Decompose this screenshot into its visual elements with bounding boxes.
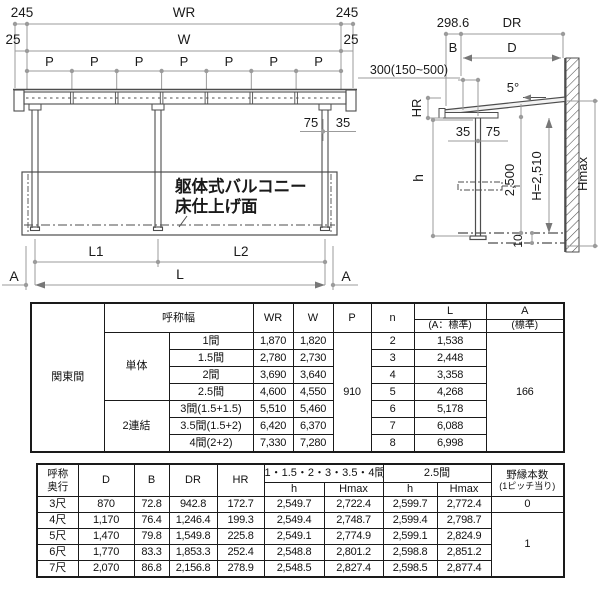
- cell: 5,178: [414, 401, 486, 418]
- header-a: A: [486, 303, 564, 320]
- header-h1: h: [264, 483, 324, 497]
- cell: 8: [371, 435, 414, 453]
- cell: 1,246.4: [169, 513, 217, 529]
- cell: 2,798.7: [437, 513, 491, 529]
- cell: 2,549.4: [264, 513, 324, 529]
- pitch-dimension-line: [27, 71, 341, 89]
- dim-l2-label: L2: [233, 244, 248, 259]
- cell: 1,870: [253, 333, 293, 350]
- cell: 6,998: [414, 435, 486, 453]
- header-b: B: [134, 464, 169, 497]
- roof-angle-label: 5°: [507, 80, 519, 95]
- cell: 6,370: [293, 418, 333, 435]
- cell: 2,877.4: [437, 561, 491, 578]
- dim-l-label: L: [176, 266, 184, 282]
- cell: 3間(1.5+1.5): [169, 401, 253, 418]
- cell: 2,730: [293, 350, 333, 367]
- cell: 2,070: [78, 561, 134, 578]
- header-l-sub: (A：標準): [414, 320, 486, 333]
- roof-beam: [13, 90, 357, 112]
- joists-first-cell: 0: [491, 497, 564, 513]
- cell: 5: [371, 384, 414, 401]
- section-a-left-label: A: [9, 268, 19, 284]
- cell: 2,598.8: [383, 545, 437, 561]
- overhang-range-label: 300(150~500): [370, 63, 448, 77]
- post-dimension-dot: [476, 139, 480, 143]
- post-offset-dot: [321, 129, 325, 133]
- table-row: 5尺 1,470 79.8 1,549.8 225.8 2,549.1 2,77…: [37, 529, 564, 545]
- svg-text:P: P: [45, 54, 54, 69]
- cell: 7,280: [293, 435, 333, 453]
- cell: 1間: [169, 333, 253, 350]
- cell: 870: [78, 497, 134, 513]
- header-hmax1: Hmax: [324, 483, 383, 497]
- joists-rest-cell: 1: [491, 513, 564, 578]
- cell: 2間: [169, 367, 253, 384]
- dim-10-label: 10: [511, 234, 525, 248]
- cell: 942.8: [169, 497, 217, 513]
- table-row: 4尺 1,170 76.4 1,246.4 199.3 2,549.4 2,74…: [37, 513, 564, 529]
- dim-w-label: W: [178, 32, 191, 47]
- cell: 1,470: [78, 529, 134, 545]
- dim-245-left-label: 245: [11, 5, 34, 20]
- cell: 2,827.4: [324, 561, 383, 578]
- svg-text:P: P: [314, 54, 323, 69]
- cell: 5,460: [293, 401, 333, 418]
- cell: 6: [371, 401, 414, 418]
- cell: 2,156.8: [169, 561, 217, 578]
- cell: 199.3: [217, 513, 264, 529]
- side-section-drawing: 298.6 DR B D 300(150~500) 5°: [340, 0, 600, 300]
- cell: 4間(2+2): [169, 435, 253, 453]
- svg-text:P: P: [135, 54, 144, 69]
- dim-dr-label: DR: [503, 15, 522, 30]
- header-group2: 2.5間: [383, 464, 491, 483]
- cell: 2,548.5: [264, 561, 324, 578]
- cell: 5,510: [253, 401, 293, 418]
- cell: 79.8: [134, 529, 169, 545]
- cell: 1,538: [414, 333, 486, 350]
- cell: 1,853.3: [169, 545, 217, 561]
- cell: 3: [371, 350, 414, 367]
- cell: 5尺: [37, 529, 78, 545]
- cell: 2,772.4: [437, 497, 491, 513]
- cell: 172.7: [217, 497, 264, 513]
- header-joists: 野縁本数 (1ピッチ当り): [491, 464, 564, 497]
- side-post: [470, 118, 486, 240]
- dr-dimension: [446, 34, 563, 106]
- table-row: 2連結 3間(1.5+1.5) 5,510 5,460 6 5,178: [31, 401, 564, 418]
- depth-spec-table: 呼称 奥行 D B DR HR 1・1.5・2・3・3.5・4間 2.5間 野縁…: [36, 463, 565, 578]
- cell: 2,548.8: [264, 545, 324, 561]
- header-dr: DR: [169, 464, 217, 497]
- dim-35-side-label: 35: [456, 124, 470, 139]
- cell: 4,550: [293, 384, 333, 401]
- cell: 4: [371, 367, 414, 384]
- cell: 2,599.1: [383, 529, 437, 545]
- width-spec-table: 関東間 呼称幅 WR W P n L A (A：標準) (標準) 単体 1間 1…: [30, 302, 565, 453]
- header-depth: 呼称 奥行: [37, 464, 78, 497]
- header-depth-line2: 奥行: [38, 481, 78, 493]
- cell: 2,774.9: [324, 529, 383, 545]
- header-p: P: [333, 303, 371, 333]
- cell: 4尺: [37, 513, 78, 529]
- header-l: L: [414, 303, 486, 320]
- dim-75-side-label: 75: [486, 124, 500, 139]
- header-a-sub: (標準): [486, 320, 564, 333]
- header-wr: WR: [253, 303, 293, 333]
- dim-75-label: 75: [304, 115, 318, 130]
- roof-panel: [439, 97, 565, 118]
- table-row: 6尺 1,770 83.3 1,853.3 252.4 2,548.8 2,80…: [37, 545, 564, 561]
- dim-d-label: D: [507, 40, 516, 55]
- cell: 278.9: [217, 561, 264, 578]
- header-d: D: [78, 464, 134, 497]
- header-depth-line1: 呼称: [38, 468, 78, 480]
- cell: 225.8: [217, 529, 264, 545]
- cell: 83.3: [134, 545, 169, 561]
- cell: 2,748.7: [324, 513, 383, 529]
- header-n: n: [371, 303, 414, 333]
- cell: 1,549.8: [169, 529, 217, 545]
- table-row: 7尺 2,070 86.8 2,156.8 278.9 2,548.5 2,82…: [37, 561, 564, 578]
- cell: 6,420: [253, 418, 293, 435]
- cell: 3,640: [293, 367, 333, 384]
- cell: 2,549.1: [264, 529, 324, 545]
- cell: 4,600: [253, 384, 293, 401]
- cell: 1,820: [293, 333, 333, 350]
- cell: 2,599.4: [383, 513, 437, 529]
- table-row: 単体 1間 1,870 1,820 910 2 1,538 166: [31, 333, 564, 350]
- cell: 2,780: [253, 350, 293, 367]
- cell: 7尺: [37, 561, 78, 578]
- cell: 2,598.5: [383, 561, 437, 578]
- dim-25-left-label: 25: [5, 32, 20, 47]
- dim-hmax-label: Hmax: [575, 157, 590, 191]
- cell: 2,824.9: [437, 529, 491, 545]
- building-wall-hatch: [566, 58, 579, 252]
- cell: 7: [371, 418, 414, 435]
- dim-h-eq-label: H=2,510: [529, 151, 544, 201]
- dim-l1-label: L1: [88, 244, 103, 259]
- dim-h-label: h: [410, 174, 426, 182]
- cell: 2,722.4: [324, 497, 383, 513]
- balcony-note-line1: 躯体式バルコニー: [174, 176, 307, 196]
- header-hmax2: Hmax: [437, 483, 491, 497]
- cell: 6尺: [37, 545, 78, 561]
- dim-298-6-label: 298.6: [437, 15, 470, 30]
- cell: 2,599.7: [383, 497, 437, 513]
- header-joists-line2: (1ピッチ当り): [492, 481, 564, 491]
- pitch-labels: P P P P P P P: [45, 54, 323, 69]
- cell: 2.5間: [169, 384, 253, 401]
- table-row: 3尺 870 72.8 942.8 172.7 2,549.7 2,722.4 …: [37, 497, 564, 513]
- balcony-note-line2: 床仕上げ面: [175, 196, 258, 216]
- cell: 76.4: [134, 513, 169, 529]
- cell: 4,268: [414, 384, 486, 401]
- svg-text:P: P: [180, 54, 189, 69]
- dim-wr-label: WR: [173, 5, 196, 20]
- cell: 2,801.2: [324, 545, 383, 561]
- cell: 86.8: [134, 561, 169, 578]
- region-cell: 関東間: [31, 303, 104, 452]
- cell: 1.5間: [169, 350, 253, 367]
- header-group1: 1・1.5・2・3・3.5・4間: [264, 464, 383, 483]
- dim-2500-label: 2,500: [502, 164, 517, 197]
- cell: 2,851.2: [437, 545, 491, 561]
- header-hr: HR: [217, 464, 264, 497]
- svg-text:P: P: [225, 54, 234, 69]
- group-single-cell: 単体: [104, 333, 169, 401]
- cell: 7,330: [253, 435, 293, 453]
- header-h2: h: [383, 483, 437, 497]
- svg-text:P: P: [269, 54, 278, 69]
- dim-hr-label: HR: [409, 99, 424, 118]
- front-elevation-drawing: 245 WR 245 25 W 25 P P P P: [0, 0, 375, 300]
- l1-l2-dimension: [35, 239, 325, 267]
- dim-b-label: B: [449, 40, 458, 55]
- catalog-spec-page: 245 WR 245 25 W 25 P P P P: [0, 0, 600, 600]
- a-value-cell: 166: [486, 333, 564, 453]
- cell: 3.5間(1.5+2): [169, 418, 253, 435]
- cell: 3,690: [253, 367, 293, 384]
- cell: 72.8: [134, 497, 169, 513]
- p-value-cell: 910: [333, 333, 371, 453]
- cell: 2,549.7: [264, 497, 324, 513]
- cell: 3尺: [37, 497, 78, 513]
- svg-text:P: P: [90, 54, 99, 69]
- cell: 3,358: [414, 367, 486, 384]
- cell: 2,448: [414, 350, 486, 367]
- group-double-cell: 2連結: [104, 401, 169, 453]
- cell: 252.4: [217, 545, 264, 561]
- header-joists-line1: 野縁本数: [492, 469, 564, 481]
- cell: 2: [371, 333, 414, 350]
- cell: 1,770: [78, 545, 134, 561]
- cell: 6,088: [414, 418, 486, 435]
- header-width: 呼称幅: [104, 303, 253, 333]
- cell: 1,170: [78, 513, 134, 529]
- header-w: W: [293, 303, 333, 333]
